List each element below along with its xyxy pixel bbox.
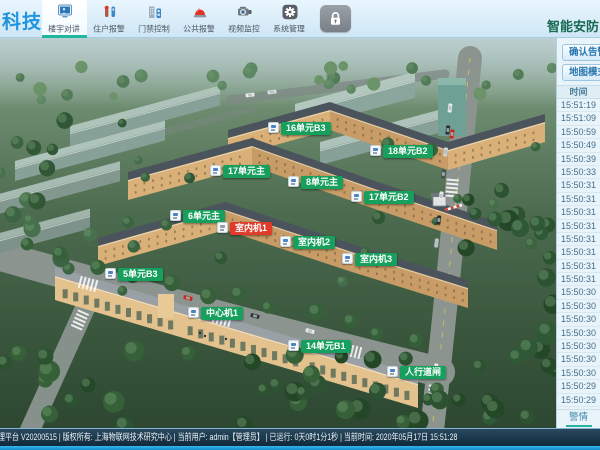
device-tag[interactable]: 室内机3 [342, 253, 397, 266]
toolbar-item-system-management[interactable]: 系统管理 [267, 0, 312, 38]
bottom-accent-strip [0, 446, 600, 450]
device-tag-label: 8单元主 [301, 176, 343, 189]
intercom-device-icon [351, 191, 362, 202]
top-bar: 科技 楼宇对讲 [0, 0, 600, 38]
public-alarm-icon [191, 3, 209, 21]
toolbar-item-video-surveillance[interactable]: 视频监控 [222, 0, 267, 38]
alarm-sidebar: 确认告警 地图模式 时间 15:51:1915:51:0915:50:5915:… [556, 38, 600, 428]
device-tag-label: 室内机3 [355, 253, 397, 266]
toolbar-item-label: 系统管理 [274, 23, 306, 34]
intercom-device-icon [288, 340, 299, 351]
alarm-time-row[interactable]: 15:51:09 [557, 112, 600, 125]
alarm-time-row[interactable]: 15:50:29 [557, 394, 600, 407]
toolbar-item-label: 住户报警 [94, 23, 126, 34]
device-tag-label: 16单元B3 [281, 122, 331, 135]
intercom-device-icon [105, 268, 116, 279]
intercom-device-icon [387, 366, 398, 377]
alarm-time-row[interactable]: 15:50:31 [557, 193, 600, 206]
alarm-time-row[interactable]: 15:50:31 [557, 246, 600, 259]
alarm-time-list: 15:51:1915:51:0915:50:5915:50:4915:50:39… [557, 99, 600, 407]
alarm-time-row[interactable]: 15:50:59 [557, 126, 600, 139]
access-control-icon [146, 3, 164, 21]
intercom-device-icon [342, 253, 353, 264]
toolbar-item-label: 公共报警 [184, 23, 216, 34]
toolbar-item-public-alarm[interactable]: 公共报警 [177, 0, 222, 38]
alarm-time-row[interactable]: 15:50:30 [557, 286, 600, 299]
map-mode-button[interactable]: 地图模式 [562, 64, 600, 81]
device-tag[interactable]: 16单元B3 [268, 122, 331, 135]
device-tag-label: 室内机2 [293, 236, 335, 249]
toolbar-item-label: 门禁控制 [139, 23, 171, 34]
device-tag[interactable]: 5单元B3 [105, 268, 163, 281]
toolbar-item-label: 视频监控 [229, 23, 261, 34]
intercom-device-icon [210, 165, 221, 176]
device-tag[interactable]: 人行道闸 [387, 366, 446, 379]
toolbar-item-access-control[interactable]: 门禁控制 [132, 0, 177, 38]
device-tag[interactable]: 室内机2 [280, 236, 335, 249]
toolbar-item-label: 楼宇对讲 [49, 23, 81, 34]
device-tag-label: 18单元B2 [383, 145, 433, 158]
toolbar-item-intercom[interactable]: 楼宇对讲 [42, 0, 87, 38]
alarm-time-row[interactable]: 15:50:30 [557, 300, 600, 313]
status-bar: 理平台 V20200515 | 版权所有: 上海物联网技术研究中心 | 当前用户… [0, 428, 600, 446]
alarm-time-row[interactable]: 15:50:31 [557, 260, 600, 273]
device-tag-label: 14单元B1 [301, 340, 351, 353]
intercom-device-icon [370, 145, 381, 156]
video-camera-icon [236, 3, 254, 21]
alarm-time-row[interactable]: 15:50:39 [557, 153, 600, 166]
lock-icon [328, 11, 343, 27]
status-text: 理平台 V20200515 | 版权所有: 上海物联网技术研究中心 | 当前用户… [0, 429, 468, 446]
lock-button[interactable] [320, 5, 351, 32]
alarm-time-row[interactable]: 15:50:31 [557, 220, 600, 233]
alarm-time-row[interactable]: 15:50:30 [557, 340, 600, 353]
intercom-device-icon [170, 210, 181, 221]
intercom-monitor-icon [56, 3, 74, 21]
alarm-time-row[interactable]: 15:50:31 [557, 206, 600, 219]
device-tag-label: 17单元主 [223, 165, 270, 178]
alarm-time-row[interactable]: 15:50:30 [557, 353, 600, 366]
alarm-time-row[interactable]: 15:50:33 [557, 166, 600, 179]
device-tag[interactable]: 17单元主 [210, 165, 270, 178]
intercom-device-icon [280, 236, 291, 247]
device-tag-label: 中心机1 [201, 307, 243, 320]
device-tag[interactable]: 8单元主 [288, 176, 343, 189]
alarm-time-row[interactable]: 15:51:19 [557, 99, 600, 112]
map-canvas[interactable]: 16单元B318单元B217单元主8单元主17单元B26单元主室内机1室内机2室… [0, 38, 556, 428]
alarm-time-row[interactable]: 15:50:49 [557, 139, 600, 152]
alarm-time-row[interactable]: 15:50:30 [557, 367, 600, 380]
alarm-time-row[interactable]: 15:50:31 [557, 273, 600, 286]
device-tag-label: 室内机1 [230, 222, 272, 235]
indoor-unit-icon [217, 222, 228, 233]
resident-alarm-icon [101, 3, 119, 21]
device-tag[interactable]: 中心机1 [188, 307, 243, 320]
brand-logo: 科技 [2, 7, 42, 34]
platform-title: 智能安防 [547, 16, 599, 35]
alarm-time-row[interactable]: 15:50:31 [557, 179, 600, 192]
toolbar-item-resident-alarm[interactable]: 住户报警 [87, 0, 132, 38]
device-tag[interactable]: 室内机1 [217, 222, 272, 235]
device-tag[interactable]: 18单元B2 [370, 145, 433, 158]
time-column-header: 时间 [557, 85, 600, 99]
alarm-time-row[interactable]: 15:50:31 [557, 233, 600, 246]
alarm-time-row[interactable]: 15:50:30 [557, 327, 600, 340]
tab-alarm-info[interactable]: 警情 [557, 409, 600, 427]
intercom-device-icon [268, 122, 279, 133]
alarm-time-row[interactable]: 15:50:29 [557, 380, 600, 393]
device-tag-label: 5单元B3 [118, 268, 163, 281]
community-aerial-rendering [0, 38, 556, 428]
device-tag[interactable]: 17单元B2 [351, 191, 414, 204]
confirm-alarm-button[interactable]: 确认告警 [562, 44, 600, 61]
device-tag[interactable]: 14单元B1 [288, 340, 351, 353]
device-tag-label: 人行道闸 [400, 366, 446, 379]
intercom-device-icon [188, 307, 199, 318]
alarm-time-row[interactable]: 15:50:30 [557, 313, 600, 326]
device-tag-label: 17单元B2 [364, 191, 414, 204]
main-toolbar: 楼宇对讲 住户报警 [42, 0, 312, 38]
gear-icon [281, 3, 299, 21]
intercom-device-icon [288, 176, 299, 187]
